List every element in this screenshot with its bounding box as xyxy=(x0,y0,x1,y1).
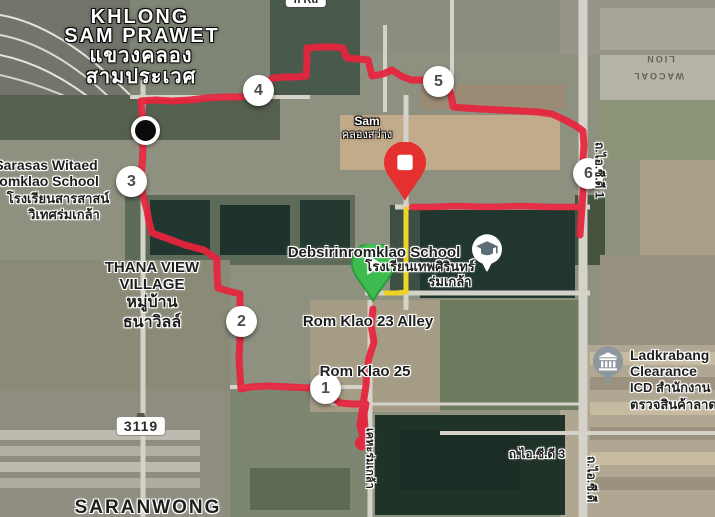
highway-3119-badge: 3119 xyxy=(116,416,166,436)
district-label-th-2: สามประเวศ xyxy=(86,66,197,88)
ladkrabang-icd-label-4: ตรวจสินค้าลาด xyxy=(630,398,715,413)
icd-road-1-label: ถ.ไอ.ซี.ดี 1 xyxy=(592,95,605,245)
sam-canal-label-2: คลองสว่าง xyxy=(342,129,393,141)
keha-romklao-road-label: เคหะร่มเกล้า xyxy=(363,408,375,508)
km-marker-3: 3 xyxy=(116,166,147,197)
thana-view-label-2: VILLAGE xyxy=(119,277,184,294)
pause-dot-marker xyxy=(131,116,160,145)
debsirin-school-label-3: ร่มเกล้า xyxy=(428,275,471,290)
sarasas-school-label-1: Sarasas Witaed xyxy=(0,158,98,174)
km-marker-4: 4 xyxy=(243,75,274,106)
saranwong-label: SARANWONG xyxy=(75,497,222,517)
top-road-label: n Rd xyxy=(286,0,326,7)
ladkrabang-icd-label-1: Ladkrabang xyxy=(630,348,709,364)
finish-marker[interactable] xyxy=(382,142,428,207)
sarasas-school-label-2: Romklao School xyxy=(0,174,99,190)
wacoal-roof-label: WACOAL xyxy=(632,71,684,81)
thana-view-label-4: ธนาวิลล์ xyxy=(123,314,181,332)
thana-view-label-1: THANA VIEW xyxy=(105,260,199,277)
map-canvas[interactable]: 123456 xyxy=(0,0,715,517)
lion-roof-label: LION xyxy=(645,54,675,64)
thana-view-label-3: หมู่บ้าน xyxy=(126,294,177,312)
km-marker-2: 2 xyxy=(226,306,257,337)
debsirin-school-label-2: โรงเรียนเทพศิรินทร์ xyxy=(365,260,475,275)
km-marker-5: 5 xyxy=(423,66,454,97)
ladkrabang-icd-label-2: Clearance xyxy=(630,364,697,380)
sam-canal-label-1: Sam xyxy=(354,115,379,128)
icd-road-3-label: ถ.ไอ.ซี.ดี 3 xyxy=(509,448,565,461)
rom-klao-23-label: Rom Klao 23 Alley xyxy=(303,314,433,331)
ladkrabang-icd-label-3: ICD สำนักงาน xyxy=(630,381,711,396)
sarasas-school-label-3: โรงเรียนสารสาสน์ xyxy=(7,192,110,207)
sarasas-school-label-4: วิเทศร่มเกล้า xyxy=(28,208,100,223)
customs-building-icon xyxy=(591,345,625,385)
icd-poi-marker[interactable] xyxy=(591,345,625,390)
district-label-th-1: แขวงคลอง xyxy=(90,45,193,67)
stop-icon xyxy=(382,142,428,202)
rom-klao-25-label: Rom Klao 25 xyxy=(320,364,411,381)
icd-road-right-label: ถ.ไอ.ซี.ดี xyxy=(584,437,597,517)
